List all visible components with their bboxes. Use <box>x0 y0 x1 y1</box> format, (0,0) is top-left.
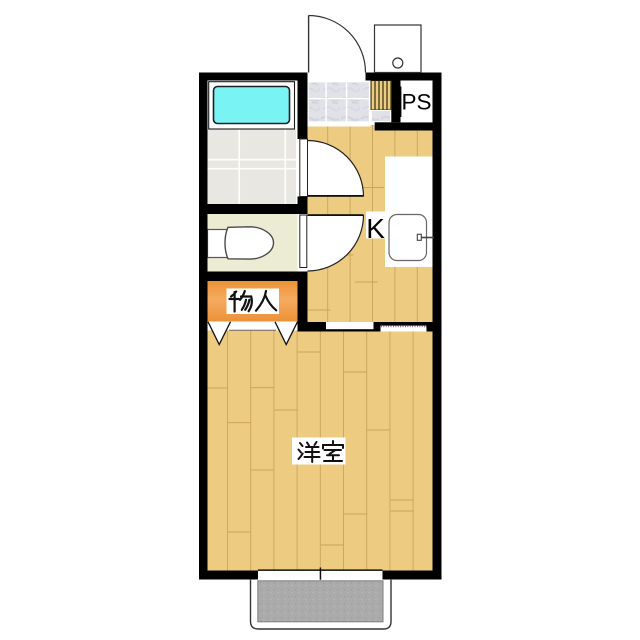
svg-text:PS: PS <box>401 90 431 115</box>
svg-text:K: K <box>366 213 385 244</box>
